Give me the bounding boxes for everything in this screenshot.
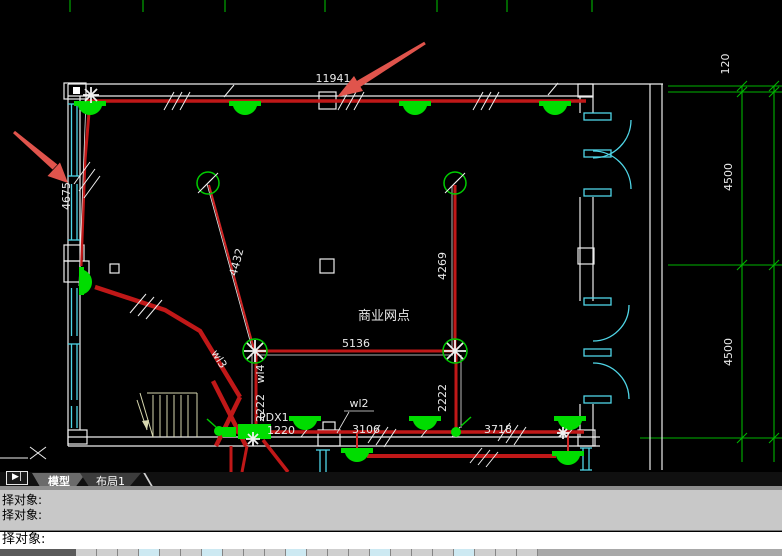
status-bar[interactable] [0, 549, 782, 556]
room-label[interactable]: 商业网点 [358, 309, 410, 324]
dim-bottom-1[interactable]: 1220 [267, 424, 295, 437]
dim-right-offset[interactable]: 120 [719, 54, 732, 75]
status-toggle-cell[interactable] [118, 549, 139, 556]
tab-layout1[interactable]: 布局1 [80, 473, 141, 486]
right-dimension-chain[interactable] [640, 81, 782, 462]
distribution-panel-icon [222, 424, 271, 439]
dim-right-bay-lower[interactable]: 4500 [722, 338, 735, 366]
dim-right-bay-upper[interactable]: 4500 [722, 163, 735, 191]
status-toggle-cell[interactable] [139, 549, 160, 556]
status-toggle-cell[interactable] [181, 549, 202, 556]
ceiling-light-icon [554, 416, 586, 430]
status-toggle-cell[interactable] [454, 549, 475, 556]
command-input[interactable]: 择对象: [0, 532, 782, 549]
model-canvas[interactable]: 11941 4675 4432 4269 5136 商业网点 wl3 wl2 w… [0, 0, 782, 472]
status-toggle-cell[interactable] [328, 549, 349, 556]
status-toggle-cell[interactable] [265, 549, 286, 556]
status-toggle-cell[interactable] [475, 549, 496, 556]
light-fixtures[interactable] [74, 101, 586, 465]
dim-bottom-2[interactable]: 3106 [352, 423, 380, 436]
ceiling-light-icon [539, 101, 571, 115]
status-toggle-cell[interactable] [286, 549, 307, 556]
junction-light-icon [243, 339, 267, 363]
junction-marks [83, 87, 569, 446]
layout-tab-bar: ▶| 模型 布局1 [0, 472, 782, 490]
wire-hatch-marks [74, 92, 574, 467]
dimension-lines [79, 100, 461, 433]
top-dimension-ticks[interactable] [70, 0, 592, 12]
status-toggle-cell[interactable] [307, 549, 328, 556]
ceiling-fan-icon [197, 172, 219, 194]
dim-bottom-3[interactable]: 3718 [484, 423, 512, 436]
status-toggle-cell[interactable] [496, 549, 517, 556]
dim-left-wall[interactable]: 4675 [60, 182, 73, 210]
walls[interactable] [64, 83, 663, 470]
circuit-label-wl2[interactable]: wl2 [349, 397, 368, 410]
status-toggle-cell[interactable] [244, 549, 265, 556]
ceiling-light-icon [229, 101, 261, 115]
status-cells[interactable] [76, 549, 538, 556]
ucs-icon [0, 447, 46, 459]
status-toggle-cell[interactable] [517, 549, 538, 556]
ceiling-light-icon [399, 101, 431, 115]
command-history-line: 择对象: [2, 508, 782, 523]
wiring[interactable] [81, 101, 586, 472]
ceiling-light-icon [409, 416, 441, 430]
ceiling-light-icon [341, 448, 373, 462]
tab-nav-icon[interactable]: ▶| [6, 471, 28, 485]
tab-edge-decoration [143, 473, 153, 486]
status-coords-cell [0, 549, 76, 556]
status-toggle-cell[interactable] [76, 549, 97, 556]
junction-light-icon [443, 339, 467, 363]
status-toggle-cell[interactable] [223, 549, 244, 556]
status-toggle-cell[interactable] [202, 549, 223, 556]
drawing-labels[interactable]: 11941 4675 4432 4269 5136 商业网点 wl3 wl2 w… [60, 54, 735, 438]
dim-junction-span[interactable]: 5136 [342, 337, 370, 350]
status-toggle-cell[interactable] [370, 549, 391, 556]
circuit-label-wl4[interactable]: wl4 [254, 364, 267, 383]
junction-dot-icon [451, 427, 461, 437]
command-prompt: 择对象: [2, 532, 45, 547]
status-toggle-cell[interactable] [160, 549, 181, 556]
dim-fan-diagonal[interactable]: 4432 [227, 247, 247, 277]
stairs[interactable] [137, 393, 197, 437]
wall-light-icon [79, 267, 92, 295]
dim-top-wall[interactable]: 11941 [316, 72, 351, 85]
arrow-icon [13, 131, 57, 170]
command-history-line: 择对象: [2, 493, 782, 508]
status-toggle-cell[interactable] [433, 549, 454, 556]
status-toggle-cell[interactable] [391, 549, 412, 556]
ceiling-light-icon [552, 451, 584, 465]
command-history[interactable]: 择对象: 择对象: [0, 490, 782, 531]
dim-right-riser[interactable]: 2222 [436, 384, 449, 412]
status-toggle-cell[interactable] [349, 549, 370, 556]
arrow-icon [355, 42, 426, 88]
tab-model[interactable]: 模型 [32, 473, 86, 486]
dim-fan-vertical[interactable]: 4269 [436, 252, 449, 280]
panel-label[interactable]: PDX1 [259, 411, 289, 424]
autocad-window: 11941 4675 4432 4269 5136 商业网点 wl3 wl2 w… [0, 0, 782, 556]
status-toggle-cell[interactable] [412, 549, 433, 556]
doors[interactable] [584, 113, 631, 403]
status-toggle-cell[interactable] [97, 549, 118, 556]
annotation-arrows [13, 42, 426, 183]
ceiling-light-icon [74, 101, 106, 115]
